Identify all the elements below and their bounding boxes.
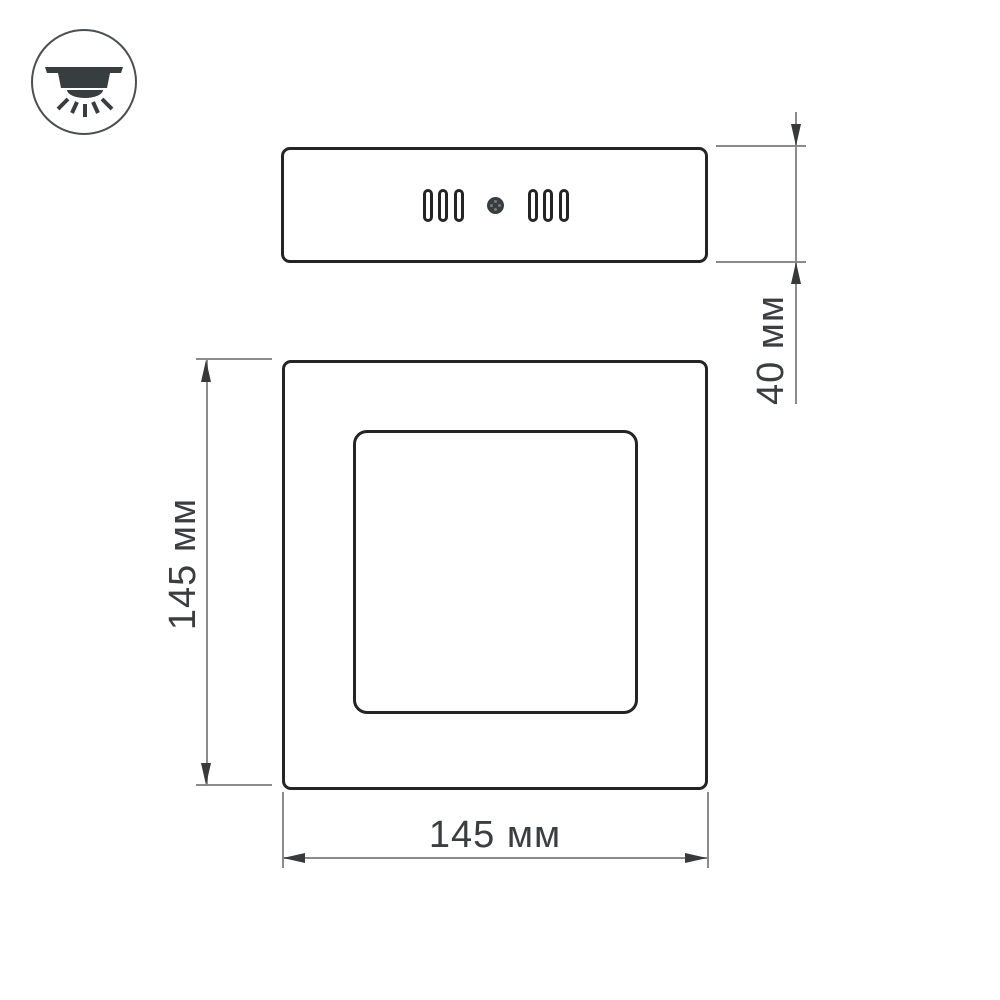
vent-slot — [423, 189, 433, 222]
screw-cross — [494, 204, 497, 207]
dim-thickness-arrow-top — [791, 124, 801, 146]
dim-width-arrow-right — [685, 853, 707, 863]
dim-height-line — [206, 360, 208, 785]
screw-head — [487, 197, 504, 214]
surface-ceiling-light-icon — [34, 32, 134, 132]
dim-width-line — [283, 857, 707, 859]
dim-height-label: 145 мм — [163, 484, 203, 644]
vent-slot — [454, 189, 464, 222]
light-dome — [67, 90, 103, 98]
light-rays — [58, 99, 112, 117]
vent-slot — [559, 189, 569, 222]
light-body — [58, 73, 110, 88]
vent-slot — [543, 189, 553, 222]
dim-height-arrow-bottom — [201, 763, 211, 785]
dim-height-arrow-top — [201, 360, 211, 382]
dim-thickness-label: 40 мм — [751, 280, 791, 420]
vent-slot — [438, 189, 448, 222]
vent-slot — [528, 189, 538, 222]
dim-width-extension-right — [707, 792, 709, 868]
front-view-diffuser — [353, 430, 638, 714]
dim-width-label: 145 мм — [385, 815, 605, 855]
dim-thickness-line — [795, 112, 797, 404]
dim-width-arrow-left — [283, 853, 305, 863]
dim-thickness-arrow-bottom — [791, 262, 801, 284]
mounting-type-badge — [31, 29, 137, 135]
technical-drawing: 40 мм 145 мм 145 мм — [0, 0, 1000, 1000]
light-flange — [45, 67, 123, 73]
